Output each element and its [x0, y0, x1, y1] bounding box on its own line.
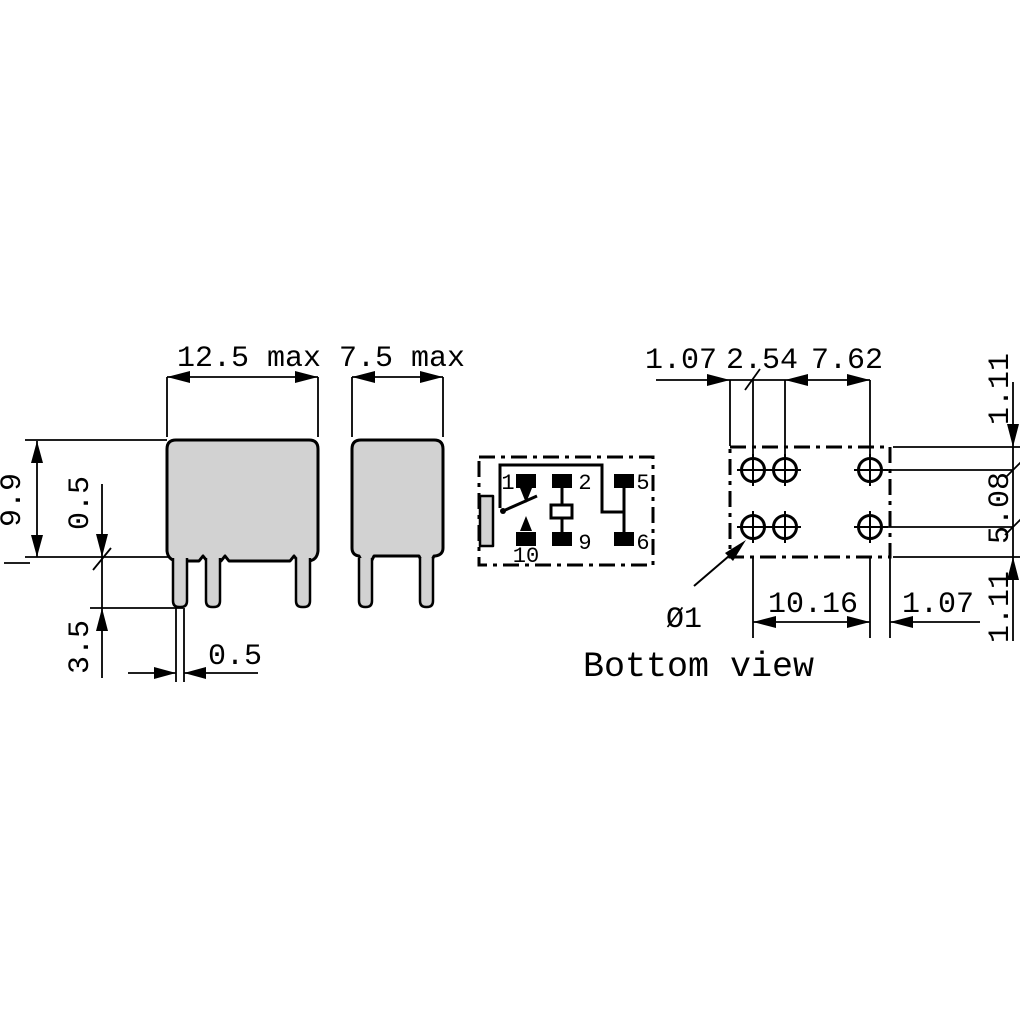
drawing-svg: 12.5 max 9.9 0.5 3.5: [0, 0, 1020, 1020]
pin-length-label: 3.5: [64, 620, 98, 674]
dim-side-depth: 7.5 max: [339, 342, 465, 437]
pin-hole: [737, 454, 769, 486]
dim-bottom-view-bottom: 10.16 1.07: [753, 558, 980, 638]
relay-pin-front-middle: [206, 558, 220, 607]
pin-thickness-label: 0.5: [208, 640, 262, 674]
relay-body-side: [352, 440, 443, 560]
pad-5: [614, 474, 634, 488]
dim-front-width: 12.5 max: [167, 342, 321, 437]
side-view: 7.5 max: [339, 342, 465, 607]
dim-row-spacing-label: 5.08: [984, 472, 1018, 544]
dim-column-span-label: 10.16: [768, 588, 858, 622]
hole-diameter-callout: Ø1: [666, 540, 746, 637]
pin-hole: [769, 511, 801, 543]
pad-2: [552, 474, 572, 488]
pad-6: [614, 532, 634, 546]
dim-contact-pitch-label: 7.62: [811, 344, 883, 378]
arrowhead-left: [184, 667, 206, 679]
pin-hole: [854, 511, 888, 543]
pad-1: [516, 474, 536, 488]
pad-9: [552, 532, 572, 546]
relay-pin-side-left: [359, 558, 372, 607]
standoff-label: 0.5: [64, 476, 98, 530]
schematic-pin-1-label: 1: [501, 471, 514, 496]
arrowhead-down: [1007, 424, 1019, 447]
schematic-pin-10-label: 10: [513, 544, 539, 569]
schematic-pin-5-label: 5: [636, 471, 649, 496]
coil-symbol: [551, 505, 572, 518]
switch-arm: [503, 496, 537, 511]
relay-pin-front-right: [296, 558, 310, 607]
bottom-view-caption: Bottom view: [583, 647, 814, 687]
front-width-label: 12.5 max: [177, 342, 321, 376]
side-depth-label: 7.5 max: [339, 342, 465, 376]
bottom-view: 1.07 2.54 7.62 1.11 5.08 1.11: [583, 344, 1020, 687]
pin-hole: [737, 511, 769, 543]
front-view: 12.5 max 9.9 0.5 3.5: [0, 342, 321, 682]
dim-right-offset-label: 1.07: [902, 588, 974, 622]
hole-diameter-label: Ø1: [666, 603, 702, 637]
dim-bottom-view-top: 1.07 2.54 7.62: [645, 344, 883, 455]
pin-hole: [854, 454, 888, 486]
front-height-label: 9.9: [0, 473, 30, 527]
dim-pin-thickness: 0.5: [128, 608, 262, 682]
coil-side-bar: [480, 496, 493, 546]
switch-pivot: [500, 508, 506, 514]
dim-bottom-offset-label: 1.11: [984, 571, 1018, 643]
arrowhead-up: [31, 441, 43, 463]
pin-hole: [769, 454, 801, 486]
arrowhead-down: [31, 535, 43, 557]
contact-arrow-down: [520, 488, 532, 503]
schematic-pin-2-label: 2: [578, 471, 591, 496]
schematic-view: 1 2 5 10 9 6: [479, 457, 653, 569]
relay-dimension-drawing: 12.5 max 9.9 0.5 3.5: [0, 0, 1020, 1020]
schematic-pin-9-label: 9: [578, 531, 591, 556]
contact-arrow-up: [520, 516, 532, 531]
relay-pin-side-right: [420, 558, 433, 607]
arrowhead-right: [154, 667, 176, 679]
relay-pin-front-left: [173, 558, 187, 607]
schematic-pin-6-label: 6: [636, 531, 649, 556]
relay-body-front: [167, 440, 318, 561]
dim-left-offset-label: 1.07: [645, 344, 717, 378]
dim-standoff-and-pin-length: 0.5 3.5: [64, 476, 183, 678]
dim-coil-pitch-label: 2.54: [726, 344, 798, 378]
dim-top-offset-label: 1.11: [984, 353, 1018, 425]
